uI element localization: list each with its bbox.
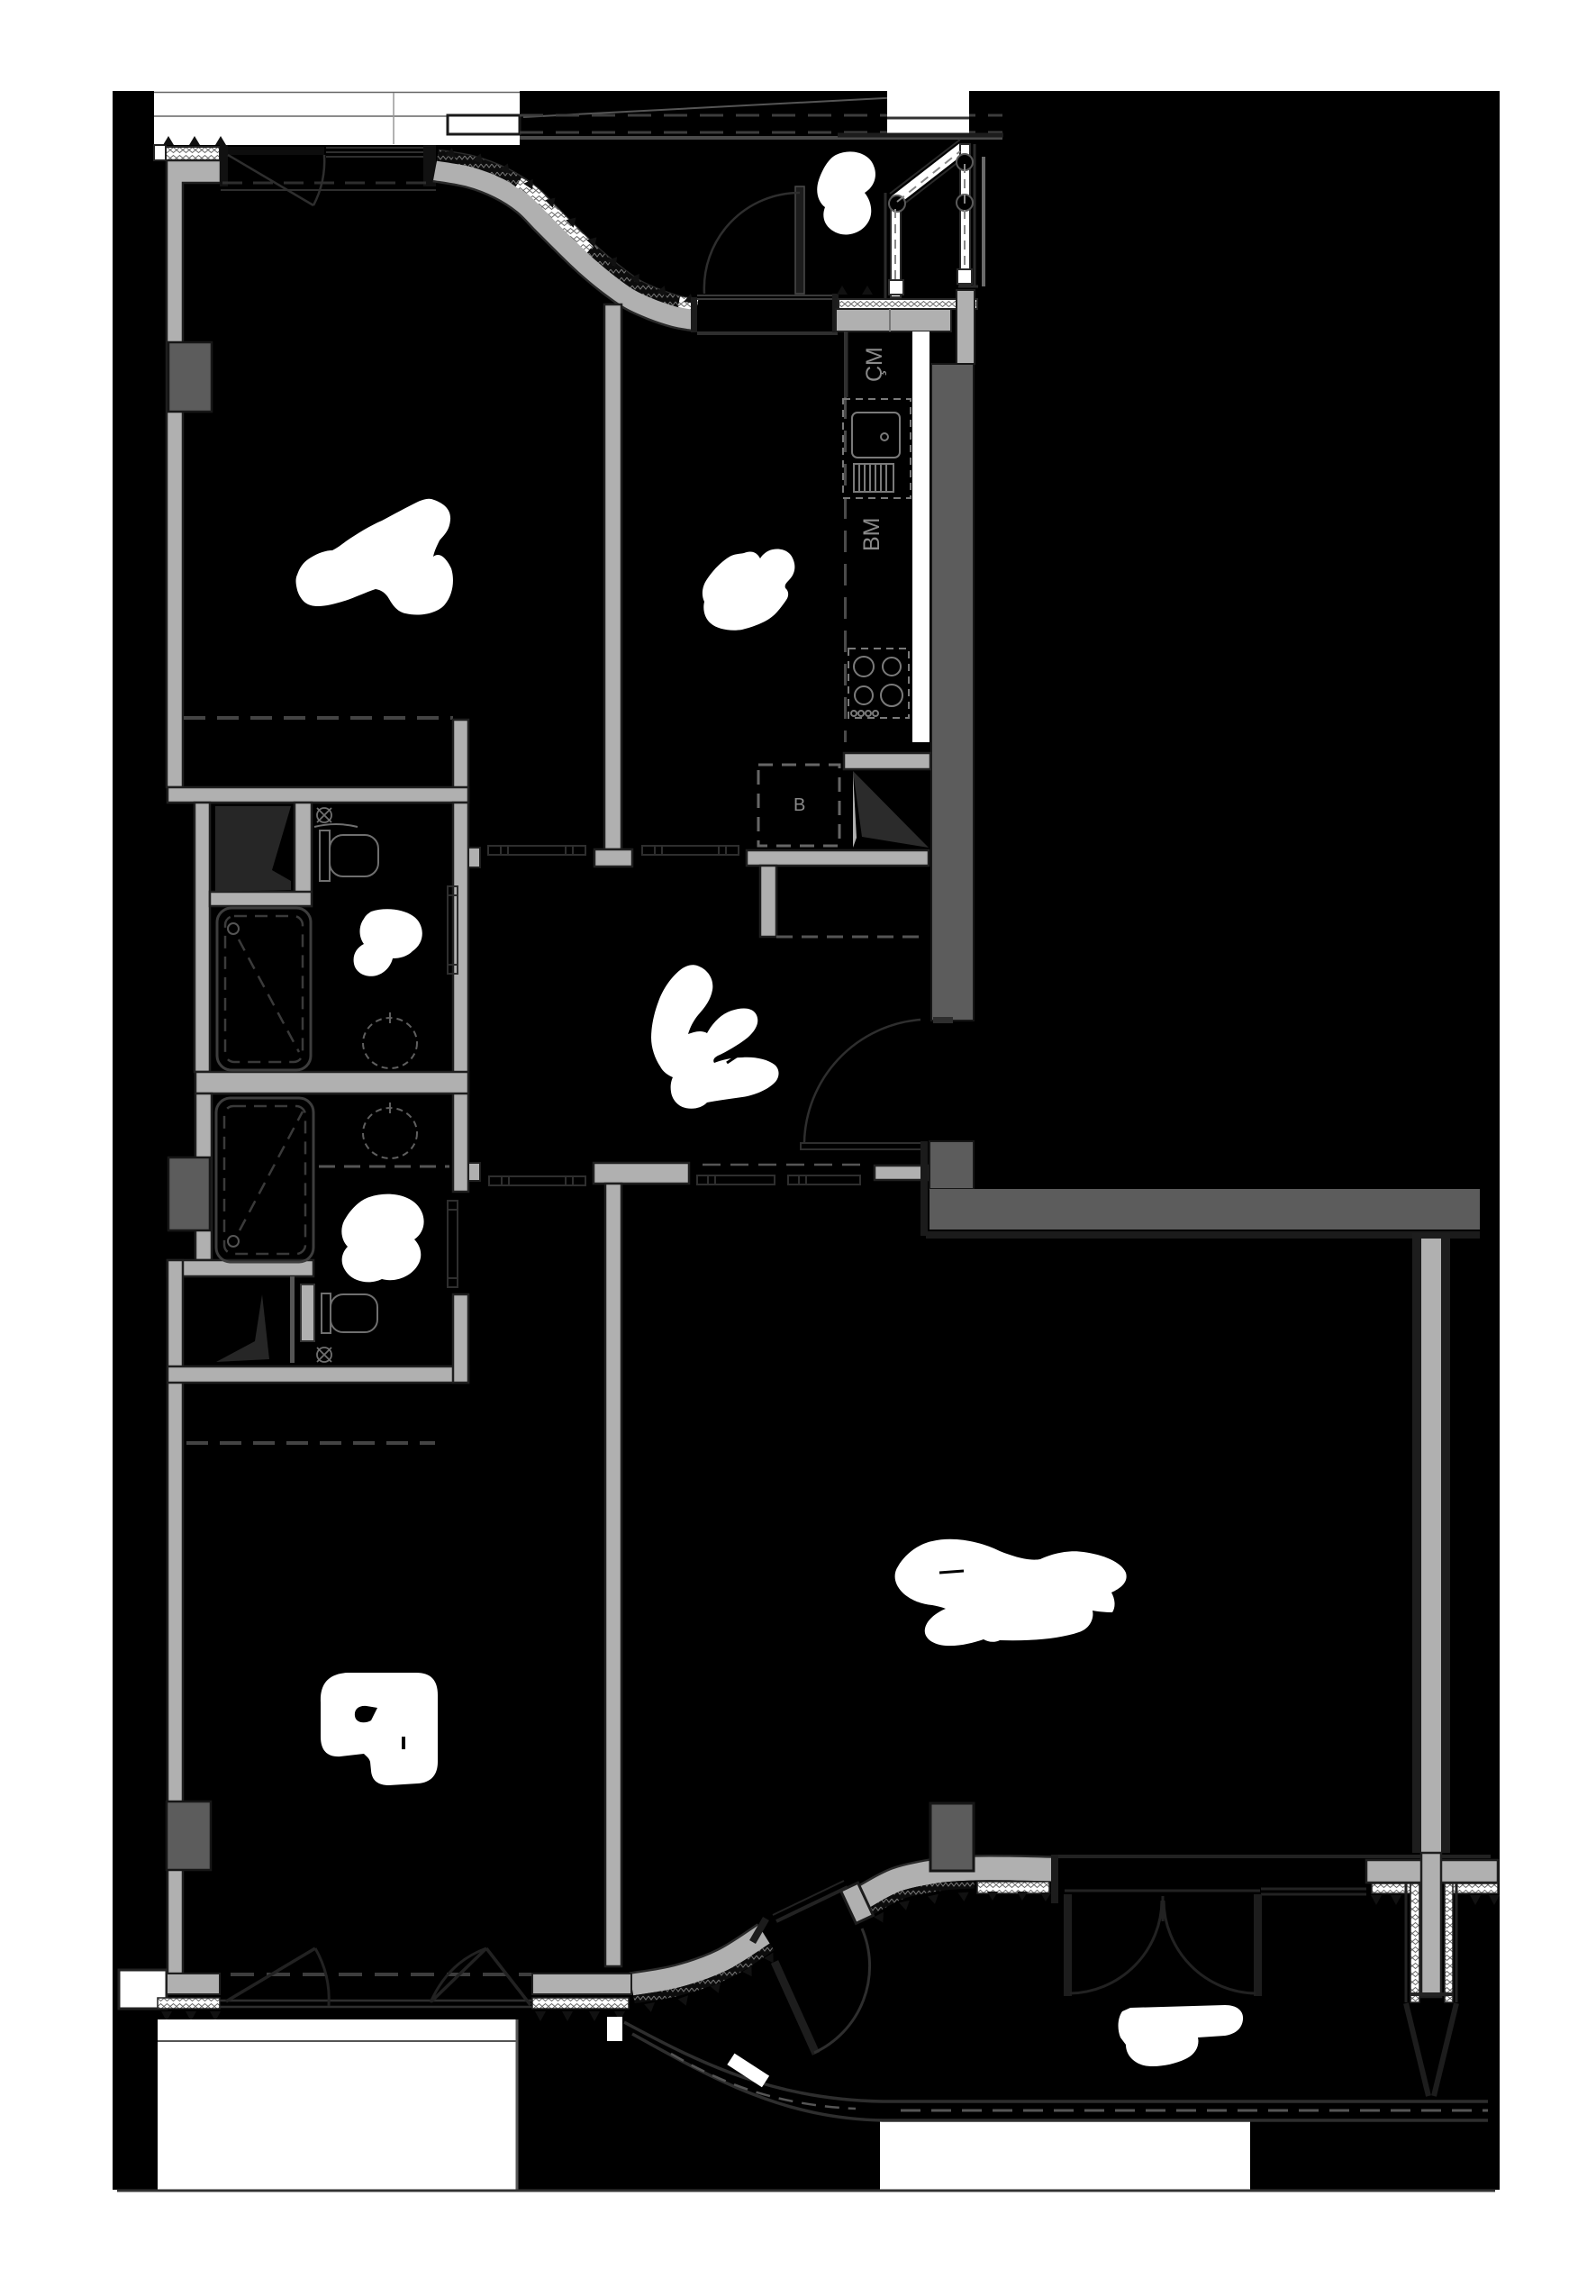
- svg-text:B: B: [793, 795, 805, 815]
- svg-text:ÇM: ÇM: [862, 347, 887, 382]
- svg-text:BM: BM: [859, 518, 884, 552]
